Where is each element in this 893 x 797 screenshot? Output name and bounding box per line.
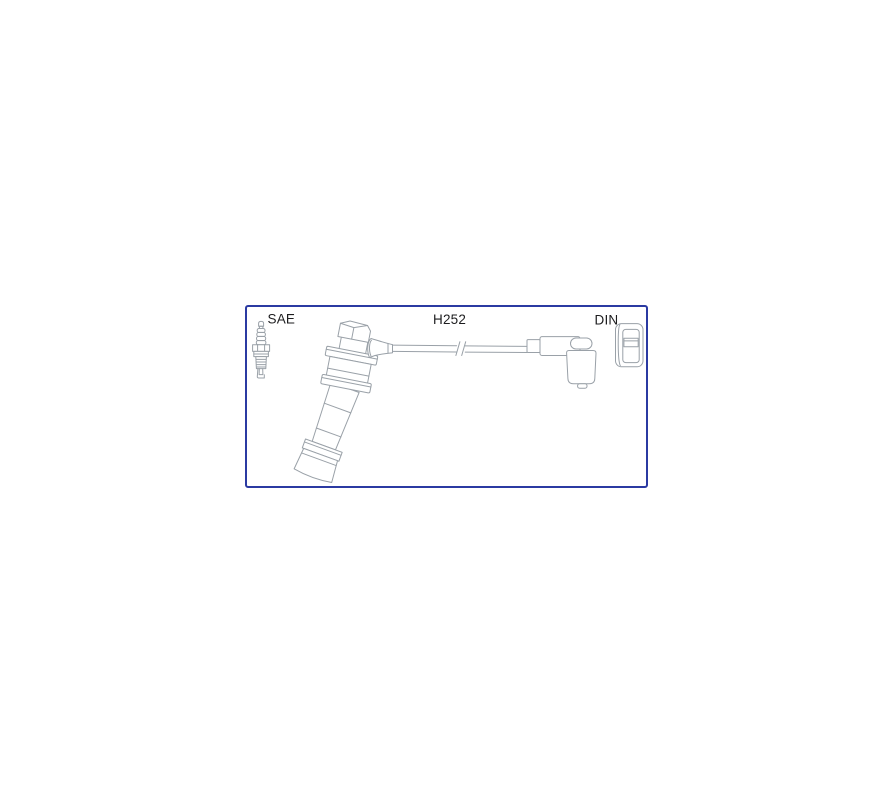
ignition-cable-kit-image: SAE H252 DIN [245,305,648,488]
page-background: SAE H252 DIN [0,0,893,797]
din-connector-icon [616,324,644,367]
din-label: DIN [595,313,619,328]
part-number-label: H252 [433,312,466,327]
sae-label: SAE [268,311,296,326]
